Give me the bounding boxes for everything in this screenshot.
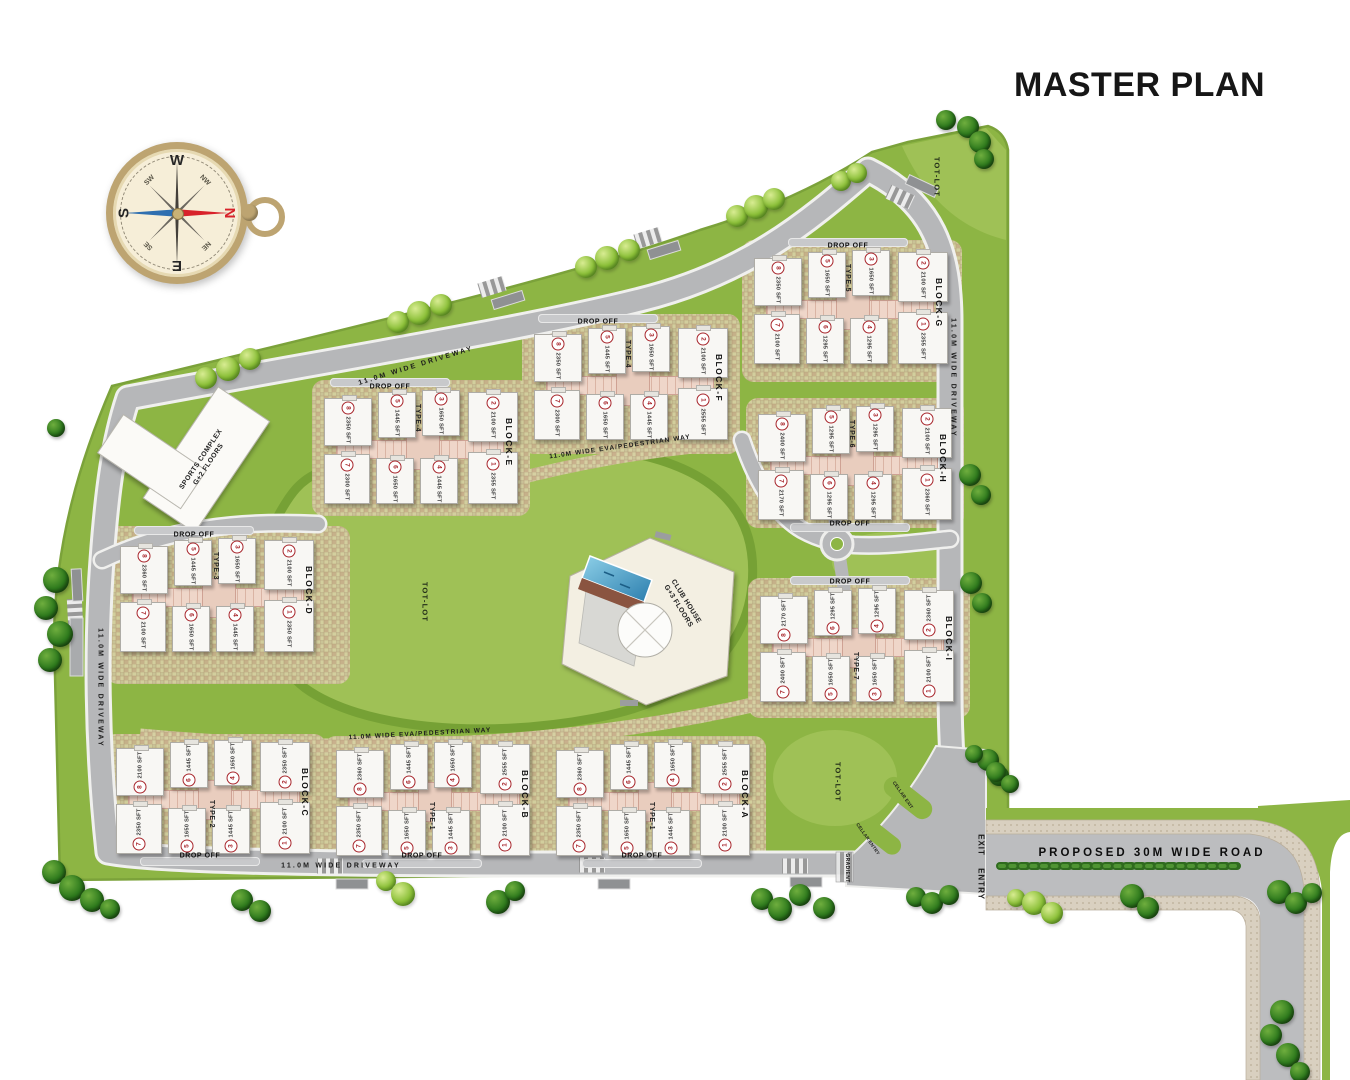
unit-building[interactable]: 82350 SFT bbox=[324, 398, 372, 446]
tree-icon bbox=[249, 900, 271, 922]
unit-building[interactable]: 31650 SFT bbox=[632, 326, 670, 372]
drop-off-lane bbox=[582, 859, 702, 868]
unit-building[interactable]: 41445 SFT bbox=[630, 394, 668, 440]
unit-number-badge: 2 bbox=[917, 256, 930, 269]
unit-area: 1295 SFT bbox=[826, 491, 832, 518]
unit-number-badge: 3 bbox=[869, 408, 882, 421]
unit-number-badge: 7 bbox=[137, 606, 150, 619]
unit-number-badge: 8 bbox=[552, 337, 565, 350]
unit-area: 2400 SFT bbox=[779, 432, 785, 459]
unit-label: 12355 SFT bbox=[487, 457, 500, 499]
unit-number-badge: 8 bbox=[574, 782, 587, 795]
unit-building[interactable]: 72350 SFT bbox=[336, 806, 382, 856]
unit-label: 72300 SFT bbox=[551, 394, 564, 436]
unit-area: 1650 SFT bbox=[404, 812, 410, 839]
unit-label: 82170 SFT bbox=[778, 599, 791, 641]
unit-number-badge: 3 bbox=[865, 252, 878, 265]
unit-number-badge: 4 bbox=[447, 773, 460, 786]
unit-area: 1445 SFT bbox=[394, 409, 400, 436]
unit-area: 1445 SFT bbox=[190, 557, 196, 584]
unit-label: 82350 SFT bbox=[552, 337, 565, 379]
unit-area: 2350 SFT bbox=[775, 276, 781, 303]
cluster-block-e[interactable]: 82350 SFT51445 SFT31650 SFT22100 SFT7230… bbox=[322, 392, 518, 506]
unit-area: 2300 SFT bbox=[344, 473, 350, 500]
unit-number-badge: 4 bbox=[227, 771, 240, 784]
unit-area: 1650 SFT bbox=[828, 658, 834, 685]
unit-building[interactable]: 31445 SFT bbox=[432, 810, 470, 856]
unit-label: 41650 SFT bbox=[667, 744, 680, 786]
unit-label: 61445 SFT bbox=[183, 744, 196, 786]
unit-area: 1445 SFT bbox=[626, 746, 632, 773]
unit-area: 2100 SFT bbox=[926, 655, 932, 682]
unit-label: 51650 SFT bbox=[401, 812, 414, 854]
tree-icon bbox=[1290, 1062, 1310, 1080]
unit-building[interactable]: 31445 SFT bbox=[652, 810, 690, 856]
unit-building[interactable]: 31295 SFT bbox=[856, 406, 894, 452]
unit-area: 1445 SFT bbox=[646, 411, 652, 438]
block-type-label: TYPE-4 bbox=[414, 404, 421, 432]
unit-area: 1650 SFT bbox=[648, 343, 654, 370]
cluster-block-h[interactable]: 82400 SFT51295 SFT31295 SFT22100 SFT7217… bbox=[756, 408, 952, 520]
cluster-block-f[interactable]: 82350 SFT51445 SFT31650 SFT22100 SFT7230… bbox=[532, 328, 728, 444]
unit-number-badge: 4 bbox=[667, 773, 680, 786]
unit-label: 72350 SFT bbox=[573, 810, 586, 852]
unit-label: 51650 SFT bbox=[821, 254, 834, 296]
tree-icon bbox=[768, 897, 792, 921]
unit-number-badge: 4 bbox=[229, 608, 242, 621]
unit-building[interactable]: 61445 SFT bbox=[390, 744, 428, 790]
unit-area: 1650 SFT bbox=[230, 742, 236, 769]
unit-area: 2100 SFT bbox=[140, 621, 146, 648]
label-driveway: 11.0M WIDE DRIVEWAY bbox=[950, 318, 957, 438]
unit-area: 2100 SFT bbox=[774, 333, 780, 360]
tree-icon bbox=[763, 188, 785, 210]
unit-building[interactable]: 82350 SFT bbox=[534, 334, 582, 382]
unit-building[interactable]: 82100 SFT bbox=[116, 748, 164, 796]
tree-icon bbox=[195, 367, 217, 389]
unit-label: 72300 SFT bbox=[341, 458, 354, 500]
unit-building[interactable]: 51650 SFT bbox=[388, 810, 426, 856]
unit-area: 2170 SFT bbox=[781, 599, 787, 626]
unit-number-badge: 1 bbox=[697, 393, 710, 406]
unit-label: 31650 SFT bbox=[435, 392, 448, 434]
unit-number-badge: 3 bbox=[665, 841, 678, 854]
unit-label: 82100 SFT bbox=[134, 751, 147, 793]
drop-off-label: DROP OFF bbox=[578, 319, 619, 326]
unit-building[interactable]: 51650 SFT bbox=[168, 808, 206, 854]
unit-label: 22555 SFT bbox=[499, 748, 512, 790]
unit-number-badge: 8 bbox=[776, 417, 789, 430]
unit-area: 1650 SFT bbox=[450, 744, 456, 771]
block-type-label: TYPE-6 bbox=[848, 420, 855, 448]
cluster-block-i[interactable]: 82170 SFT61295 SFT41295 SFT22360 SFT7240… bbox=[758, 590, 958, 706]
tree-icon bbox=[239, 348, 261, 370]
unit-number-badge: 5 bbox=[821, 254, 834, 267]
unit-label: 31445 SFT bbox=[665, 812, 678, 854]
unit-label: 51650 SFT bbox=[621, 812, 634, 854]
unit-area: 1650 SFT bbox=[624, 812, 630, 839]
unit-building[interactable]: 51445 SFT bbox=[378, 392, 416, 438]
unit-number-badge: 7 bbox=[341, 458, 354, 471]
unit-area: 1445 SFT bbox=[228, 810, 234, 837]
tree-icon bbox=[960, 572, 982, 594]
unit-area: 2100 SFT bbox=[137, 751, 143, 778]
unit-area: 1295 SFT bbox=[872, 423, 878, 450]
unit-label: 72100 SFT bbox=[771, 318, 784, 360]
unit-building[interactable]: 61650 SFT bbox=[376, 458, 414, 504]
unit-area: 2350 SFT bbox=[555, 352, 561, 379]
unit-number-badge: 5 bbox=[181, 839, 194, 852]
unit-building[interactable]: 61445 SFT bbox=[610, 744, 648, 790]
unit-number-badge: 6 bbox=[599, 396, 612, 409]
compass-south: S bbox=[116, 208, 133, 218]
unit-building[interactable]: 61650 SFT bbox=[586, 394, 624, 440]
unit-number-badge: 2 bbox=[487, 396, 500, 409]
unit-building[interactable]: 51650 SFT bbox=[812, 656, 850, 702]
unit-label: 41295 SFT bbox=[863, 320, 876, 362]
tree-icon bbox=[936, 110, 956, 130]
unit-area: 2355 SFT bbox=[920, 332, 926, 359]
unit-area: 2350 SFT bbox=[356, 810, 362, 837]
unit-number-badge: 2 bbox=[279, 775, 292, 788]
tree-icon bbox=[971, 485, 991, 505]
unit-building[interactable]: 51295 SFT bbox=[812, 408, 850, 454]
cluster-block-a[interactable]: 82360 SFT61445 SFT41650 SFT22555 SFT7235… bbox=[554, 744, 754, 856]
unit-building[interactable]: 41295 SFT bbox=[858, 588, 896, 634]
unit-number-badge: 1 bbox=[917, 317, 930, 330]
unit-building[interactable]: 82360 SFT bbox=[556, 750, 604, 798]
unit-number-badge: 3 bbox=[435, 392, 448, 405]
unit-area: 2100 SFT bbox=[490, 411, 496, 438]
unit-label: 51445 SFT bbox=[601, 330, 614, 372]
compass-north: N bbox=[221, 208, 238, 219]
unit-label: 31445 SFT bbox=[445, 812, 458, 854]
unit-label: 22100 SFT bbox=[917, 256, 930, 298]
unit-number-badge: 5 bbox=[825, 410, 838, 423]
block-name-label: BLOCK-E bbox=[504, 418, 514, 467]
unit-number-badge: 3 bbox=[869, 687, 882, 700]
unit-label: 61295 SFT bbox=[823, 476, 836, 518]
unit-number-badge: 4 bbox=[871, 619, 884, 632]
unit-label: 82350 SFT bbox=[342, 401, 355, 443]
unit-building[interactable]: 72300 SFT bbox=[324, 454, 370, 504]
unit-area: 1295 SFT bbox=[874, 590, 880, 617]
drop-off-label: DROP OFF bbox=[180, 853, 221, 860]
unit-area: 1650 SFT bbox=[872, 658, 878, 685]
unit-number-badge: 6 bbox=[403, 775, 416, 788]
unit-label: 41445 SFT bbox=[433, 460, 446, 502]
unit-building[interactable]: 72400 SFT bbox=[760, 652, 806, 702]
unit-number-badge: 2 bbox=[697, 332, 710, 345]
unit-label: 51445 SFT bbox=[187, 542, 200, 584]
unit-building[interactable]: 72170 SFT bbox=[758, 470, 804, 520]
unit-building[interactable]: 72100 SFT bbox=[754, 314, 800, 364]
drop-off-label: DROP OFF bbox=[830, 579, 871, 586]
label-exit: EXIT bbox=[977, 834, 986, 856]
unit-building[interactable]: 41650 SFT bbox=[654, 742, 692, 788]
unit-building[interactable]: 51650 SFT bbox=[808, 252, 846, 298]
tree-icon bbox=[34, 596, 58, 620]
unit-area: 2350 SFT bbox=[136, 808, 142, 835]
tree-icon bbox=[789, 884, 811, 906]
unit-label: 12350 SFT bbox=[283, 605, 296, 647]
drop-off-label: DROP OFF bbox=[402, 853, 443, 860]
tree-icon bbox=[1260, 1024, 1282, 1046]
unit-number-badge: 3 bbox=[225, 839, 238, 852]
cluster-block-c[interactable]: 82100 SFT61445 SFT41650 SFT22350 SFT7235… bbox=[114, 742, 314, 854]
compass-icon: W N E S NW NE SE SW bbox=[106, 142, 248, 284]
unit-number-badge: 8 bbox=[778, 628, 791, 641]
unit-building[interactable]: 51445 SFT bbox=[588, 328, 626, 374]
unit-area: 2360 SFT bbox=[141, 564, 147, 591]
compass-west: W bbox=[170, 152, 184, 169]
unit-building[interactable]: 31445 SFT bbox=[212, 808, 250, 854]
unit-area: 2350 SFT bbox=[576, 810, 582, 837]
unit-building[interactable]: 61295 SFT bbox=[814, 590, 852, 636]
tree-icon bbox=[959, 464, 981, 486]
unit-number-badge: 2 bbox=[923, 623, 936, 636]
block-name-label: BLOCK-H bbox=[938, 434, 948, 483]
unit-number-badge: 8 bbox=[138, 549, 151, 562]
unit-label: 61445 SFT bbox=[403, 746, 416, 788]
unit-area: 1445 SFT bbox=[436, 475, 442, 502]
unit-label: 61650 SFT bbox=[599, 396, 612, 438]
unit-building[interactable]: 31650 SFT bbox=[856, 656, 894, 702]
block-type-label: TYPE-3 bbox=[212, 552, 219, 580]
unit-number-badge: 1 bbox=[279, 836, 292, 849]
unit-building[interactable]: 41650 SFT bbox=[214, 740, 252, 786]
unit-area: 1650 SFT bbox=[392, 475, 398, 502]
unit-number-badge: 6 bbox=[823, 476, 836, 489]
unit-area: 2555 SFT bbox=[502, 748, 508, 775]
unit-number-badge: 7 bbox=[573, 839, 586, 852]
unit-area: 1650 SFT bbox=[184, 810, 190, 837]
unit-area: 2100 SFT bbox=[924, 427, 930, 454]
tree-icon bbox=[847, 163, 867, 183]
unit-label: 12100 SFT bbox=[719, 809, 732, 851]
unit-area: 1445 SFT bbox=[604, 345, 610, 372]
unit-area: 2350 SFT bbox=[282, 746, 288, 773]
unit-building[interactable]: 51445 SFT bbox=[174, 540, 212, 586]
unit-label: 12100 SFT bbox=[279, 807, 292, 849]
block-name-label: BLOCK-G bbox=[934, 278, 944, 327]
master-plan: MASTER PLAN W N E S NW NE SE SW SPORTS C… bbox=[0, 0, 1350, 1080]
unit-number-badge: 1 bbox=[923, 684, 936, 697]
unit-number-badge: 8 bbox=[772, 261, 785, 274]
block-type-label: TYPE-4 bbox=[624, 340, 631, 368]
tree-icon bbox=[974, 149, 994, 169]
unit-number-badge: 8 bbox=[134, 780, 147, 793]
unit-label: 82400 SFT bbox=[776, 417, 789, 459]
unit-label: 41295 SFT bbox=[871, 590, 884, 632]
unit-area: 2555 SFT bbox=[722, 748, 728, 775]
unit-building[interactable]: 61295 SFT bbox=[810, 474, 848, 520]
unit-building[interactable]: 72350 SFT bbox=[556, 806, 602, 856]
unit-label: 22350 SFT bbox=[279, 746, 292, 788]
unit-building[interactable]: 41295 SFT bbox=[854, 474, 892, 520]
tree-icon bbox=[38, 648, 62, 672]
unit-label: 12360 SFT bbox=[921, 473, 934, 515]
compass-knob bbox=[241, 204, 258, 221]
unit-area: 1295 SFT bbox=[866, 335, 872, 362]
block-type-label: TYPE-5 bbox=[844, 264, 851, 292]
unit-label: 31650 SFT bbox=[645, 328, 658, 370]
tree-icon bbox=[47, 419, 65, 437]
unit-label: 61445 SFT bbox=[623, 746, 636, 788]
drop-off-label: DROP OFF bbox=[828, 243, 869, 250]
unit-number-badge: 7 bbox=[353, 839, 366, 852]
unit-building[interactable]: 82360 SFT bbox=[120, 546, 168, 594]
drop-off-label: DROP OFF bbox=[830, 521, 871, 528]
label-driveway: 11.0M WIDE DRIVEWAY bbox=[97, 628, 104, 748]
tree-icon bbox=[972, 593, 992, 613]
unit-building[interactable]: 82360 SFT bbox=[336, 750, 384, 798]
unit-building[interactable]: 41295 SFT bbox=[850, 318, 888, 364]
tree-icon bbox=[1001, 775, 1019, 793]
unit-number-badge: 6 bbox=[389, 460, 402, 473]
unit-area: 2350 SFT bbox=[345, 416, 351, 443]
unit-number-badge: 1 bbox=[487, 457, 500, 470]
unit-label: 22100 SFT bbox=[487, 396, 500, 438]
unit-label: 22360 SFT bbox=[923, 594, 936, 636]
unit-area: 2360 SFT bbox=[357, 753, 363, 780]
unit-area: 1445 SFT bbox=[668, 812, 674, 839]
cluster-block-b[interactable]: 82360 SFT61445 SFT41650 SFT22555 SFT7235… bbox=[334, 744, 534, 856]
tree-icon bbox=[47, 621, 73, 647]
unit-number-badge: 4 bbox=[643, 396, 656, 409]
block-type-label: TYPE-1 bbox=[428, 802, 435, 830]
label-tot_lot: TOT-LOT bbox=[421, 582, 430, 622]
unit-label: 31445 SFT bbox=[225, 810, 238, 852]
tree-icon bbox=[595, 246, 619, 270]
unit-label: 51445 SFT bbox=[391, 394, 404, 436]
unit-number-badge: 1 bbox=[499, 838, 512, 851]
unit-area: 2100 SFT bbox=[282, 807, 288, 834]
unit-number-badge: 6 bbox=[623, 775, 636, 788]
unit-building[interactable]: 51650 SFT bbox=[608, 810, 646, 856]
unit-building[interactable]: 31650 SFT bbox=[422, 390, 460, 436]
unit-label: 61295 SFT bbox=[827, 592, 840, 634]
unit-building[interactable]: 72350 SFT bbox=[116, 804, 162, 854]
cluster-block-g[interactable]: 82350 SFT51650 SFT31650 SFT22100 SFT7210… bbox=[752, 252, 948, 368]
unit-building[interactable]: 41445 SFT bbox=[420, 458, 458, 504]
unit-area: 2400 SFT bbox=[780, 656, 786, 683]
unit-number-badge: 6 bbox=[183, 773, 196, 786]
tree-icon bbox=[1137, 897, 1159, 919]
unit-area: 2100 SFT bbox=[722, 809, 728, 836]
unit-area: 2100 SFT bbox=[502, 809, 508, 836]
block-name-label: BLOCK-I bbox=[944, 616, 954, 661]
unit-building[interactable]: 61650 SFT bbox=[172, 606, 210, 652]
unit-number-badge: 4 bbox=[867, 476, 880, 489]
unit-building[interactable]: 82400 SFT bbox=[758, 414, 806, 462]
unit-area: 2355 SFT bbox=[490, 472, 496, 499]
unit-building[interactable]: 41650 SFT bbox=[434, 742, 472, 788]
unit-label: 82350 SFT bbox=[772, 261, 785, 303]
block-name-label: BLOCK-C bbox=[300, 768, 310, 817]
unit-number-badge: 6 bbox=[185, 608, 198, 621]
unit-area: 1650 SFT bbox=[868, 267, 874, 294]
tree-icon bbox=[407, 301, 431, 325]
unit-area: 1295 SFT bbox=[828, 425, 834, 452]
unit-number-badge: 3 bbox=[645, 328, 658, 341]
unit-building[interactable]: 61445 SFT bbox=[170, 742, 208, 788]
unit-building[interactable]: 72100 SFT bbox=[120, 602, 166, 652]
tree-icon bbox=[575, 256, 597, 278]
unit-label: 82360 SFT bbox=[138, 549, 151, 591]
unit-label: 31650 SFT bbox=[231, 540, 244, 582]
unit-area: 2170 SFT bbox=[778, 489, 784, 516]
unit-label: 72100 SFT bbox=[137, 606, 150, 648]
unit-area: 2555 SFT bbox=[700, 408, 706, 435]
unit-area: 2100 SFT bbox=[286, 559, 292, 586]
unit-area: 1445 SFT bbox=[406, 746, 412, 773]
tree-icon bbox=[939, 885, 959, 905]
unit-building[interactable]: 41445 SFT bbox=[216, 606, 254, 652]
unit-label: 61650 SFT bbox=[389, 460, 402, 502]
unit-area: 2360 SFT bbox=[926, 594, 932, 621]
tree-icon bbox=[216, 357, 240, 381]
unit-label: 61650 SFT bbox=[185, 608, 198, 650]
unit-area: 1445 SFT bbox=[186, 744, 192, 771]
unit-label: 22100 SFT bbox=[697, 332, 710, 374]
unit-area: 1445 SFT bbox=[448, 812, 454, 839]
tree-icon bbox=[1041, 902, 1063, 924]
drop-off-label: DROP OFF bbox=[174, 532, 215, 539]
unit-building[interactable]: 61295 SFT bbox=[806, 318, 844, 364]
block-name-label: BLOCK-A bbox=[740, 770, 750, 819]
unit-number-badge: 1 bbox=[283, 605, 296, 618]
tree-icon bbox=[430, 294, 452, 316]
unit-label: 82360 SFT bbox=[354, 753, 367, 795]
cluster-block-d[interactable]: 82360 SFT51445 SFT31650 SFT22100 SFT7210… bbox=[118, 540, 318, 656]
drop-off-label: DROP OFF bbox=[622, 853, 663, 860]
unit-label: 72170 SFT bbox=[775, 474, 788, 516]
compass-east: E bbox=[172, 257, 182, 274]
unit-label: 22100 SFT bbox=[921, 412, 934, 454]
unit-area: 2350 SFT bbox=[286, 620, 292, 647]
unit-number-badge: 7 bbox=[775, 474, 788, 487]
block-type-label: TYPE-1 bbox=[648, 802, 655, 830]
tree-icon bbox=[505, 881, 525, 901]
unit-area: 2100 SFT bbox=[700, 347, 706, 374]
unit-building[interactable]: 82350 SFT bbox=[754, 258, 802, 306]
unit-number-badge: 4 bbox=[863, 320, 876, 333]
unit-area: 2300 SFT bbox=[554, 409, 560, 436]
unit-number-badge: 7 bbox=[777, 685, 790, 698]
unit-label: 41650 SFT bbox=[447, 744, 460, 786]
unit-label: 12555 SFT bbox=[697, 393, 710, 435]
unit-building[interactable]: 31650 SFT bbox=[852, 250, 890, 296]
unit-number-badge: 7 bbox=[771, 318, 784, 331]
unit-label: 51650 SFT bbox=[181, 810, 194, 852]
unit-building[interactable]: 31650 SFT bbox=[218, 538, 256, 584]
label-tot_lot: TOT-LOT bbox=[834, 762, 843, 802]
unit-building[interactable]: 72300 SFT bbox=[534, 390, 580, 440]
unit-building[interactable]: 82170 SFT bbox=[760, 596, 808, 644]
unit-label: 51295 SFT bbox=[825, 410, 838, 452]
label-driveway: 11.0M WIDE DRIVEWAY bbox=[281, 863, 401, 870]
unit-area: 2360 SFT bbox=[924, 488, 930, 515]
unit-label: 12100 SFT bbox=[923, 655, 936, 697]
drop-off-label: DROP OFF bbox=[370, 384, 411, 391]
label-tot_lot: TOT-LOT bbox=[933, 157, 942, 197]
unit-label: 51650 SFT bbox=[825, 658, 838, 700]
unit-area: 1650 SFT bbox=[234, 555, 240, 582]
unit-label: 22100 SFT bbox=[283, 544, 296, 586]
unit-area: 1295 SFT bbox=[870, 491, 876, 518]
unit-area: 1445 SFT bbox=[232, 623, 238, 650]
